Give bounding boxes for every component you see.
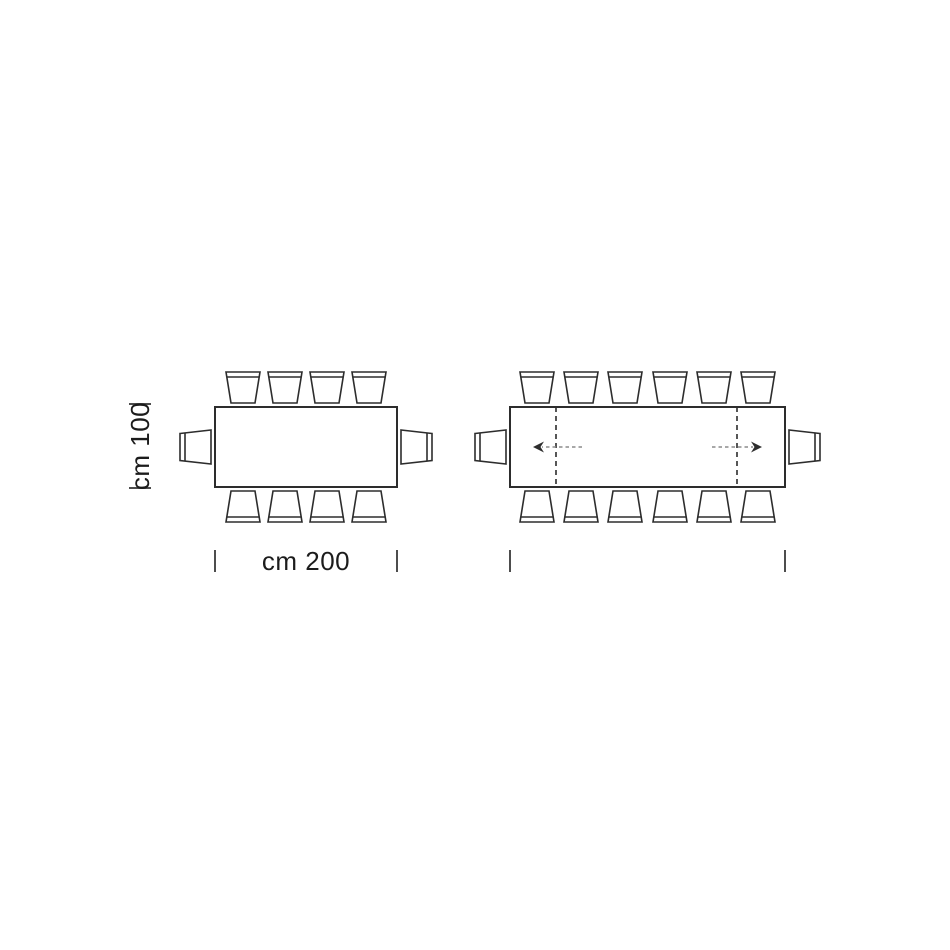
table-extended-group	[475, 372, 820, 572]
tables-layer	[180, 372, 820, 572]
width-dimension-label: cm 100	[125, 402, 155, 490]
table-top	[215, 407, 397, 487]
table-closed-group	[180, 372, 432, 572]
diagram-canvas: cm 200 cm 100	[0, 0, 950, 950]
table-top	[510, 407, 785, 487]
table-seating-dimension-diagram: cm 200 cm 100	[0, 0, 950, 950]
length-dimension-label: cm 200	[262, 546, 350, 576]
